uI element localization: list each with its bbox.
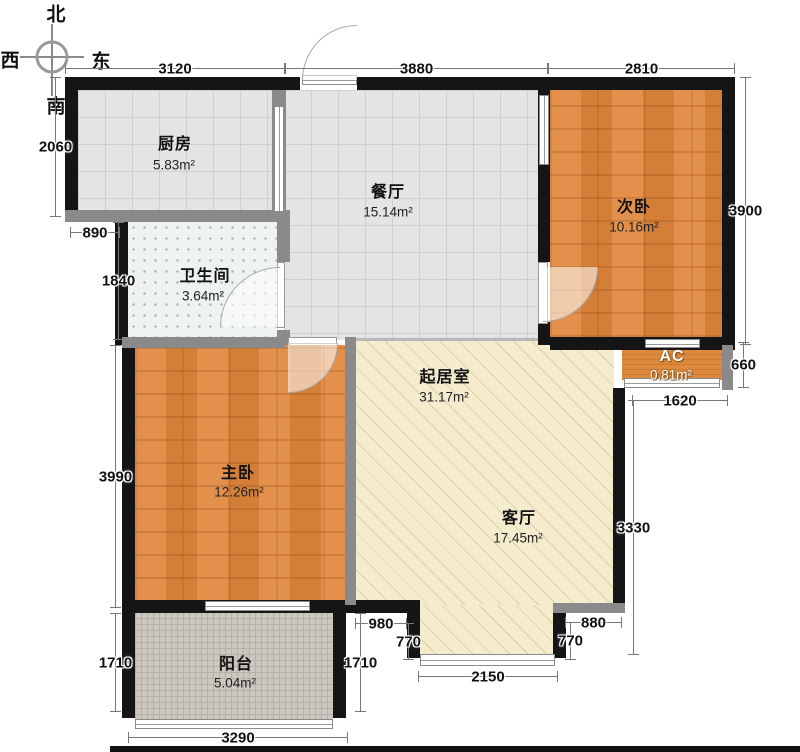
dimension-tick — [355, 618, 356, 629]
dimension-tick — [621, 617, 622, 628]
dimension-tick — [110, 613, 121, 614]
dimension-tick — [738, 342, 749, 343]
dimension-label-left-890: 890 — [82, 224, 107, 241]
floor-living-main — [354, 340, 614, 605]
room-label-balcony: 阳台 — [219, 650, 253, 674]
dimension-label-right-660: 660 — [731, 357, 756, 374]
dimension-label-right-3330: 3330 — [617, 519, 650, 536]
dimension-label-right-1620: 1620 — [663, 392, 696, 409]
dimension-bottom-3290: 3290 — [128, 737, 348, 738]
room-label-parlor: 客厅 — [502, 504, 536, 528]
window-line — [206, 606, 309, 607]
dimension-label-top-2810: 2810 — [625, 60, 658, 77]
bottom-bar — [110, 746, 800, 752]
window-kitchen-slider — [274, 106, 284, 212]
room-label-ac: AC — [659, 348, 684, 366]
dimension-mid-2150: 2150 — [418, 676, 558, 677]
dimension-label-left-3990: 3990 — [99, 468, 132, 485]
room-area-parlor: 17.45m² — [493, 531, 543, 546]
dimension-tick — [285, 63, 286, 74]
window-bed2-partition — [539, 95, 549, 165]
dimension-left-890: 890 — [70, 232, 120, 233]
dimension-left-1840: 1840 — [118, 222, 119, 340]
window-line — [544, 96, 545, 164]
dimension-label-mid-980: 980 — [368, 615, 393, 632]
room-area-balcony: 5.04m² — [214, 676, 256, 691]
wall-living-right — [613, 388, 625, 610]
wall-step-h-right — [553, 603, 625, 613]
wall-master-right — [345, 337, 356, 605]
dimension-tick — [403, 659, 414, 660]
room-area-ac: 0.81m² — [650, 368, 692, 383]
room-label-bedroom2: 次卧 — [617, 193, 651, 217]
dimension-tick — [548, 63, 549, 74]
window-balcony-rail — [135, 719, 333, 729]
dimension-right-3330: 3330 — [633, 400, 634, 655]
compass-west-label: 西 — [0, 46, 19, 73]
dimension-left-3990: 3990 — [115, 345, 116, 608]
dimension-tick — [65, 63, 66, 74]
dimension-left-1710: 1710 — [115, 613, 116, 712]
dimension-tick — [557, 671, 558, 682]
dimension-label-right-3900: 3900 — [729, 203, 762, 220]
wall-kitchen-bottom — [65, 210, 290, 222]
dimension-label-mid-770-l: 770 — [396, 633, 421, 650]
window-master-window — [205, 601, 310, 611]
room-area-bathroom: 3.64m² — [182, 289, 224, 304]
wall-master-top-l — [122, 337, 285, 348]
wall-ac-top — [550, 337, 735, 350]
dimension-tick — [727, 395, 728, 406]
window-line — [646, 344, 699, 345]
dimension-right-1620: 1620 — [632, 400, 728, 401]
room-label-master: 主卧 — [221, 459, 255, 483]
dimension-tick — [355, 613, 366, 614]
wall-top-left — [65, 77, 300, 90]
dimension-label-top-3880: 3880 — [400, 60, 433, 77]
dimension-mid-980: 980 — [355, 623, 407, 624]
dimension-tick — [565, 659, 576, 660]
window-ac-window-top — [645, 339, 700, 348]
dimension-tick — [418, 671, 419, 682]
dimension-tick — [734, 63, 735, 74]
room-area-dining: 15.14m² — [363, 205, 413, 220]
dimension-mid-1710: 1710 — [360, 613, 361, 712]
dimension-label-bottom-3290: 3290 — [221, 729, 254, 746]
dimension-tick — [628, 400, 639, 401]
entry-door-arc-icon — [302, 25, 357, 80]
wall-left-kitchen — [65, 90, 78, 222]
dimension-tick — [628, 654, 639, 655]
dimension-top-3880: 3880 — [285, 68, 548, 69]
dimension-tick — [110, 345, 121, 346]
room-area-master: 12.26m² — [214, 485, 264, 500]
dimension-tick — [565, 622, 576, 623]
dimension-tick — [113, 339, 124, 340]
window-line — [136, 724, 332, 725]
room-area-bedroom2: 10.16m² — [609, 220, 659, 235]
wall-top-right — [357, 77, 735, 90]
dimension-top-3120: 3120 — [65, 68, 285, 69]
window-line — [279, 107, 280, 211]
dimension-label-mid-1710: 1710 — [344, 654, 377, 671]
dimension-tick — [113, 222, 124, 223]
dimension-mid-770-l: 770 — [408, 623, 409, 660]
dimension-tick — [347, 732, 348, 743]
window-line — [421, 660, 554, 661]
dimension-tick — [110, 711, 121, 712]
dimension-tick — [128, 732, 129, 743]
room-label-bathroom: 卫生间 — [179, 262, 230, 286]
dimension-tick — [119, 227, 120, 238]
dimension-label-mid-880: 880 — [581, 614, 606, 631]
wall-bath-right-up — [277, 215, 290, 262]
dimension-tick — [738, 387, 749, 388]
window-line — [625, 383, 719, 384]
dimension-right-660: 660 — [743, 342, 744, 388]
dimension-label-left-1710: 1710 — [99, 654, 132, 671]
room-area-living: 31.17m² — [419, 390, 469, 405]
dimension-label-mid-2150: 2150 — [471, 668, 504, 685]
window-line — [303, 80, 356, 81]
dimension-left-2060: 2060 — [55, 77, 56, 217]
dimension-tick — [70, 227, 71, 238]
wall-bed2-wall-lower — [538, 322, 550, 345]
room-label-kitchen: 厨房 — [158, 130, 192, 154]
dimension-tick — [740, 344, 751, 345]
dimension-tick — [50, 216, 61, 217]
room-label-dining: 餐厅 — [371, 178, 405, 202]
dimension-top-2810: 2810 — [548, 68, 735, 69]
room-label-living: 起居室 — [419, 363, 470, 387]
compass-south-label: 南 — [46, 92, 65, 119]
window-living-window — [420, 654, 555, 666]
dimension-mid-770-r: 770 — [570, 622, 571, 660]
floor-living-south — [418, 605, 555, 655]
room-area-kitchen: 5.83m² — [153, 158, 195, 173]
compass-east-label: 东 — [91, 47, 110, 74]
dimension-label-left-1840: 1840 — [102, 273, 135, 290]
dimension-tick — [740, 77, 751, 78]
dimension-tick — [50, 77, 61, 78]
dimension-tick — [355, 711, 366, 712]
dimension-label-mid-770-r: 770 — [558, 633, 583, 650]
compass-north-label: 北 — [46, 0, 65, 27]
dimension-tick — [403, 623, 414, 624]
dimension-label-left-2060: 2060 — [39, 139, 72, 156]
dimension-label-top-3120: 3120 — [158, 60, 191, 77]
floor-plan: 北 西 东 南 厨房5.83m²餐厅15.14m²次卧10.16m²卫生间3.6… — [0, 0, 800, 752]
wall-dining-living-line — [356, 338, 538, 341]
dimension-right-3900: 3900 — [745, 77, 746, 345]
dimension-tick — [110, 607, 121, 608]
